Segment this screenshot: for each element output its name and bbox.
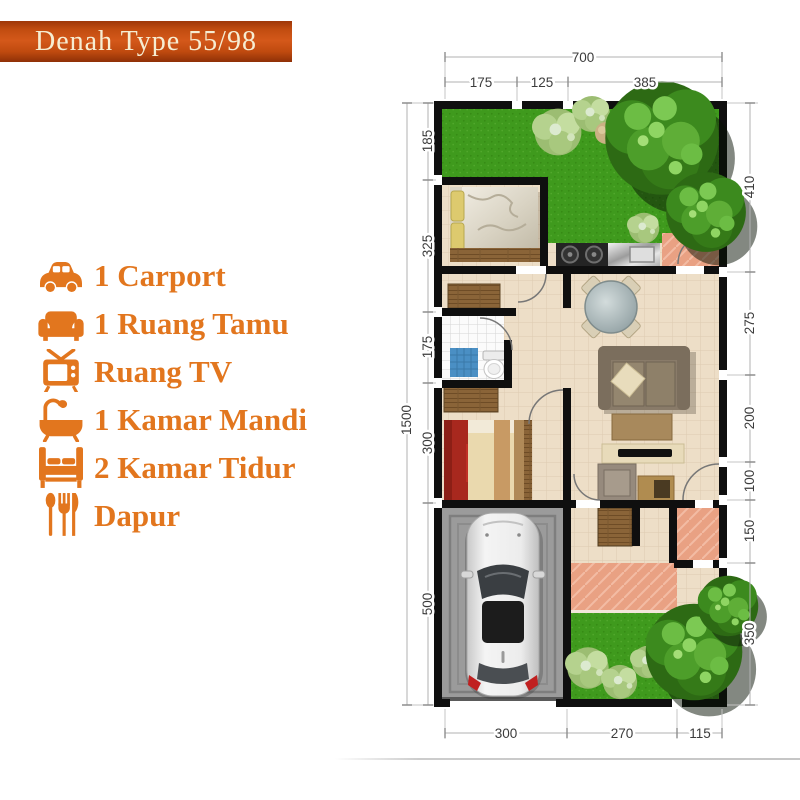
page: { "title": "Denah Type 55/98", "legend":… — [0, 0, 800, 800]
tv — [618, 449, 672, 457]
dim-label: 275 — [742, 312, 757, 335]
coffee-table — [612, 414, 672, 440]
dim-label: 185 — [420, 130, 435, 153]
dim-label: 350 — [742, 623, 757, 646]
bottom-divider — [335, 758, 800, 760]
living-sofa — [598, 346, 696, 414]
console-table — [448, 284, 500, 308]
dim-label: 175 — [420, 336, 435, 359]
dim-label: 175 — [470, 75, 493, 90]
dim-label: 100 — [742, 470, 757, 493]
dim-label: 410 — [742, 176, 757, 199]
dim-label: 300 — [420, 432, 435, 455]
floor-plan: 700 175 125 385 1500 185 325 175 300 500… — [0, 0, 800, 800]
dining-set — [581, 275, 642, 339]
tv-console — [602, 444, 684, 463]
dim-label: 115 — [689, 726, 711, 741]
car — [461, 513, 545, 699]
terrace-center — [567, 563, 677, 612]
kitchen-counter — [556, 243, 660, 266]
bed-2 — [444, 420, 532, 505]
dim-label: 700 — [572, 50, 595, 65]
bed-1 — [450, 187, 544, 262]
toilet — [483, 351, 505, 379]
terrace-right — [677, 500, 719, 560]
shower-mat — [450, 348, 478, 377]
wardrobe — [598, 508, 632, 546]
dim-label: 385 — [634, 75, 657, 90]
dim-label: 125 — [531, 75, 554, 90]
dim-label: 150 — [742, 520, 757, 543]
dim-label: 325 — [420, 235, 435, 258]
dim-label: 500 — [420, 593, 435, 616]
dim-label: 270 — [611, 726, 634, 741]
dim-label: 200 — [742, 407, 757, 430]
dresser — [444, 386, 498, 412]
dim-label: 1500 — [399, 405, 414, 435]
dim-label: 300 — [495, 726, 518, 741]
